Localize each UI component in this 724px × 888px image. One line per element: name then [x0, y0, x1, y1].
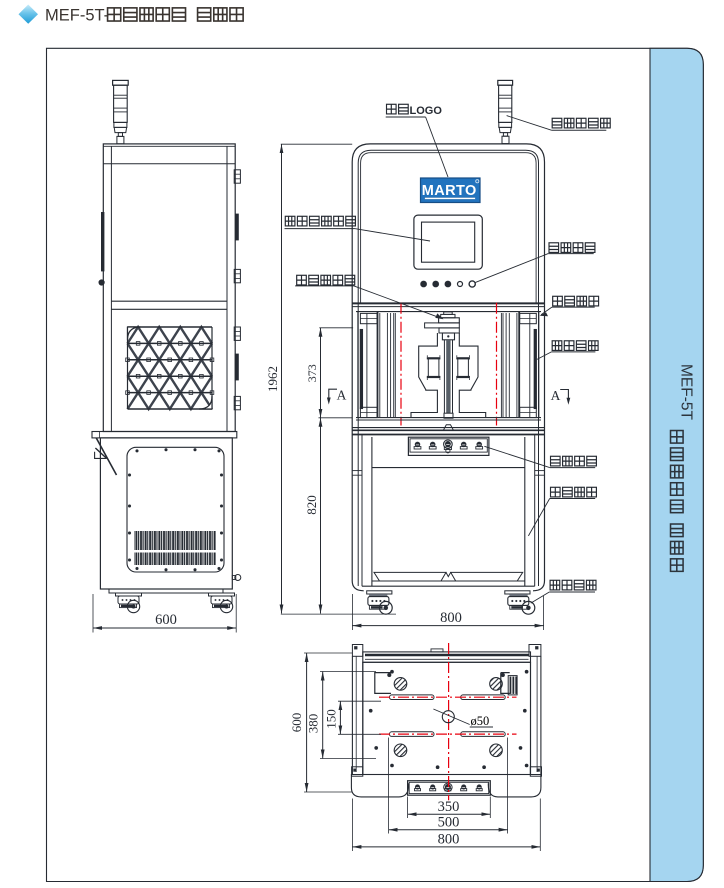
svg-text:A: A	[551, 388, 561, 403]
svg-text:A: A	[337, 388, 347, 403]
svg-text:1962: 1962	[265, 366, 280, 392]
svg-text:ø50: ø50	[471, 714, 490, 728]
svg-text:373: 373	[305, 364, 319, 382]
svg-text:150: 150	[323, 709, 338, 729]
svg-text:800: 800	[438, 832, 460, 848]
svg-text:600: 600	[289, 713, 304, 733]
svg-text:MEF-5T-: MEF-5T-	[45, 7, 109, 25]
svg-text:350: 350	[438, 799, 460, 815]
svg-text:MEF-5T: MEF-5T	[678, 364, 695, 421]
svg-text:820: 820	[304, 495, 319, 515]
svg-text:380: 380	[306, 714, 321, 734]
svg-text:LOGO: LOGO	[410, 105, 443, 117]
svg-text:MARTO: MARTO	[422, 183, 477, 199]
svg-text:500: 500	[438, 815, 460, 831]
svg-text:600: 600	[155, 612, 177, 628]
svg-text:800: 800	[440, 610, 462, 626]
